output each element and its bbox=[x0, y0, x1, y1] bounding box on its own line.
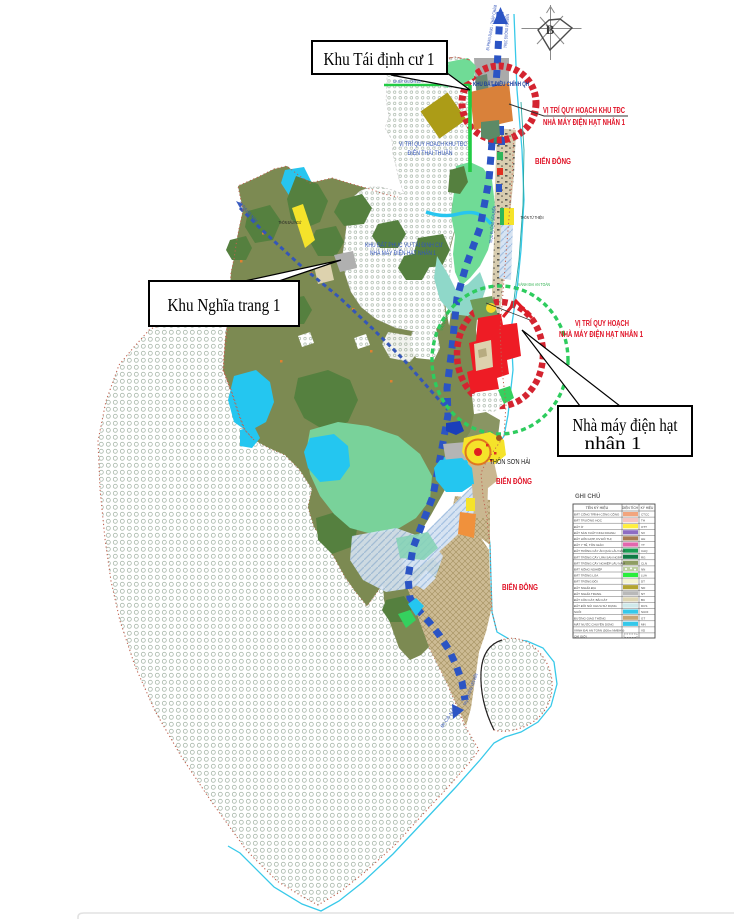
svg-text:ĐẤT TRỐNG ĐỒI: ĐẤT TRỐNG ĐỒI bbox=[574, 579, 598, 584]
svg-text:NT: NT bbox=[641, 592, 645, 596]
svg-text:ĐƯỜNG GIAO THÔNG: ĐƯỜNG GIAO THÔNG bbox=[574, 615, 606, 620]
svg-text:NHÀ MÁY ĐIỆN HẠT NHÂN 1: NHÀ MÁY ĐIỆN HẠT NHÂN 1 bbox=[370, 249, 437, 257]
svg-text:THÔN SƠN HẢI: THÔN SƠN HẢI bbox=[490, 457, 531, 466]
svg-text:ĐẤT TRỒNG CÂY ĂN QUẢ LÂU NĂM: ĐẤT TRỒNG CÂY ĂN QUẢ LÂU NĂM bbox=[574, 548, 626, 553]
svg-text:SUỐI: SUỐI bbox=[574, 609, 582, 614]
svg-text:VỊ TRÍ QUY HOẠCH KHU TĐC: VỊ TRÍ QUY HOẠCH KHU TĐC bbox=[399, 141, 468, 148]
svg-text:CLN: CLN bbox=[641, 561, 647, 565]
svg-text:OTT: OTT bbox=[641, 525, 647, 529]
svg-text:ĐẤT TRỒNG CÂY LÂM SẢN NGẬP: ĐẤT TRỒNG CÂY LÂM SẢN NGẬP bbox=[574, 554, 622, 559]
svg-text:RG: RG bbox=[641, 555, 646, 559]
svg-text:KHU ĐẤT ĐIỀU CHỈNH QH: KHU ĐẤT ĐIỀU CHỈNH QH bbox=[473, 81, 529, 88]
svg-text:ĐẤT HỖN HỢP, DV ĐÔ THỊ: ĐẤT HỖN HỢP, DV ĐÔ THỊ bbox=[574, 536, 612, 541]
svg-text:BIỂN ĐÔNG: BIỂN ĐÔNG bbox=[496, 477, 532, 486]
svg-text:ĐẤT SẢN XUẤT KINH DOANH: ĐẤT SẢN XUẤT KINH DOANH bbox=[574, 530, 615, 535]
svg-text:DIỆN TÍCH: DIỆN TÍCH bbox=[622, 505, 639, 510]
svg-text:ĐẤT CỒN CÁT, BÃI CÁT: ĐẤT CỒN CÁT, BÃI CÁT bbox=[574, 597, 607, 602]
svg-text:ĐẤT NGHĨA ĐỊA: ĐẤT NGHĨA ĐỊA bbox=[574, 585, 596, 590]
svg-text:ĐẤT CÔNG TRÌNH CÔNG CỘNG: ĐẤT CÔNG TRÌNH CÔNG CỘNG bbox=[574, 512, 620, 517]
svg-text:DCS: DCS bbox=[641, 604, 647, 608]
svg-text:THÔN BÀU NGỨ: THÔN BÀU NGỨ bbox=[279, 219, 302, 225]
svg-text:ĐIỆN THÁI THUẬN: ĐIỆN THÁI THUẬN bbox=[408, 149, 453, 157]
svg-text:GT: GT bbox=[641, 616, 645, 620]
svg-text:YT: YT bbox=[641, 543, 645, 547]
svg-text:ĐẤT ĐỒI NÚI CHƯA SỬ DỤNG: ĐẤT ĐỒI NÚI CHƯA SỬ DỤNG bbox=[574, 603, 617, 608]
svg-text:MẶT NƯỚC CHUYÊN DÙNG: MẶT NƯỚC CHUYÊN DÙNG bbox=[574, 621, 614, 626]
svg-text:ĐẤT TRƯỜNG HỌC: ĐẤT TRƯỜNG HỌC bbox=[574, 518, 603, 523]
svg-text:THÔN TỪ THIỆN: THÔN TỪ THIỆN bbox=[521, 213, 544, 220]
svg-text:Khu Nghĩa trang 1: Khu Nghĩa trang 1 bbox=[168, 295, 281, 315]
svg-text:KHU ĐẤT PHỤC VỤ TÁI ĐỊNH CƯ: KHU ĐẤT PHỤC VỤ TÁI ĐỊNH CƯ bbox=[365, 242, 443, 249]
svg-text:TH: TH bbox=[641, 519, 645, 523]
svg-text:NHÀ MÁY ĐIỆN HẠT NHÂN 1: NHÀ MÁY ĐIỆN HẠT NHÂN 1 bbox=[559, 330, 643, 339]
svg-text:MN: MN bbox=[641, 622, 646, 626]
svg-text:VÀNH ĐAI AN TOÀN (500m NMĐHN): VÀNH ĐAI AN TOÀN (500m NMĐHN) bbox=[574, 629, 624, 633]
svg-text:SUOI: SUOI bbox=[641, 610, 649, 614]
svg-text:ĐẤT Y TẾ, TÔN GIÁO: ĐẤT Y TẾ, TÔN GIÁO bbox=[574, 542, 604, 547]
svg-text:NHÀ MÁY ĐIỆN HẠT NHÂN 1: NHÀ MÁY ĐIỆN HẠT NHÂN 1 bbox=[543, 118, 625, 127]
svg-text:Khu Tái định cư 1: Khu Tái định cư 1 bbox=[324, 49, 435, 69]
svg-text:nhân 1: nhân 1 bbox=[585, 433, 642, 453]
svg-text:ĐẤT TRỒNG LÚA: ĐẤT TRỒNG LÚA bbox=[574, 573, 598, 578]
svg-text:KÝ HIỆU: KÝ HIỆU bbox=[641, 505, 654, 510]
svg-text:VÀNH ĐAI AN TOÀN: VÀNH ĐAI AN TOÀN bbox=[518, 281, 550, 287]
svg-text:ĐẤT NGHĨA TRANG: ĐẤT NGHĨA TRANG bbox=[574, 591, 602, 596]
svg-text:GHI CHÚ: GHI CHÚ bbox=[575, 493, 600, 500]
svg-text:DT: DT bbox=[641, 580, 645, 584]
svg-text:CTCC: CTCC bbox=[641, 513, 650, 517]
svg-text:Nhà máy điện hạt: Nhà máy điện hạt bbox=[573, 415, 678, 435]
svg-text:HH: HH bbox=[641, 537, 645, 541]
svg-text:SX: SX bbox=[641, 531, 645, 535]
svg-text:VỊ TRÍ QUY HOẠCH: VỊ TRÍ QUY HOẠCH bbox=[575, 319, 629, 328]
svg-text:GIA ĐẤT KHU DÂN CƯ: GIA ĐẤT KHU DÂN CƯ bbox=[393, 78, 421, 84]
svg-text:B: B bbox=[546, 22, 555, 37]
svg-text:ĐẤT TRỒNG CÂY NGHIỆP LÂU NĂM: ĐẤT TRỒNG CÂY NGHIỆP LÂU NĂM bbox=[574, 560, 625, 565]
svg-text:ĐẤT Ở: ĐẤT Ở bbox=[574, 524, 584, 529]
svg-text:VỊ TRÍ QUY HOẠCH KHU TĐC: VỊ TRÍ QUY HOẠCH KHU TĐC bbox=[543, 106, 625, 115]
svg-text:ĐẤT NÔNG NGHIỆP: ĐẤT NÔNG NGHIỆP bbox=[574, 567, 602, 572]
svg-text:LUA: LUA bbox=[641, 574, 647, 578]
svg-text:CHỈ GIỚI: CHỈ GIỚI bbox=[574, 633, 587, 638]
svg-text:CAQ: CAQ bbox=[641, 549, 648, 553]
svg-text:BIỂN ĐÔNG: BIỂN ĐÔNG bbox=[535, 157, 571, 166]
svg-text:TÊN KÝ HIỆU: TÊN KÝ HIỆU bbox=[586, 505, 609, 510]
svg-text:NN: NN bbox=[641, 568, 645, 572]
svg-text:BIỂN ĐÔNG: BIỂN ĐÔNG bbox=[502, 583, 538, 592]
